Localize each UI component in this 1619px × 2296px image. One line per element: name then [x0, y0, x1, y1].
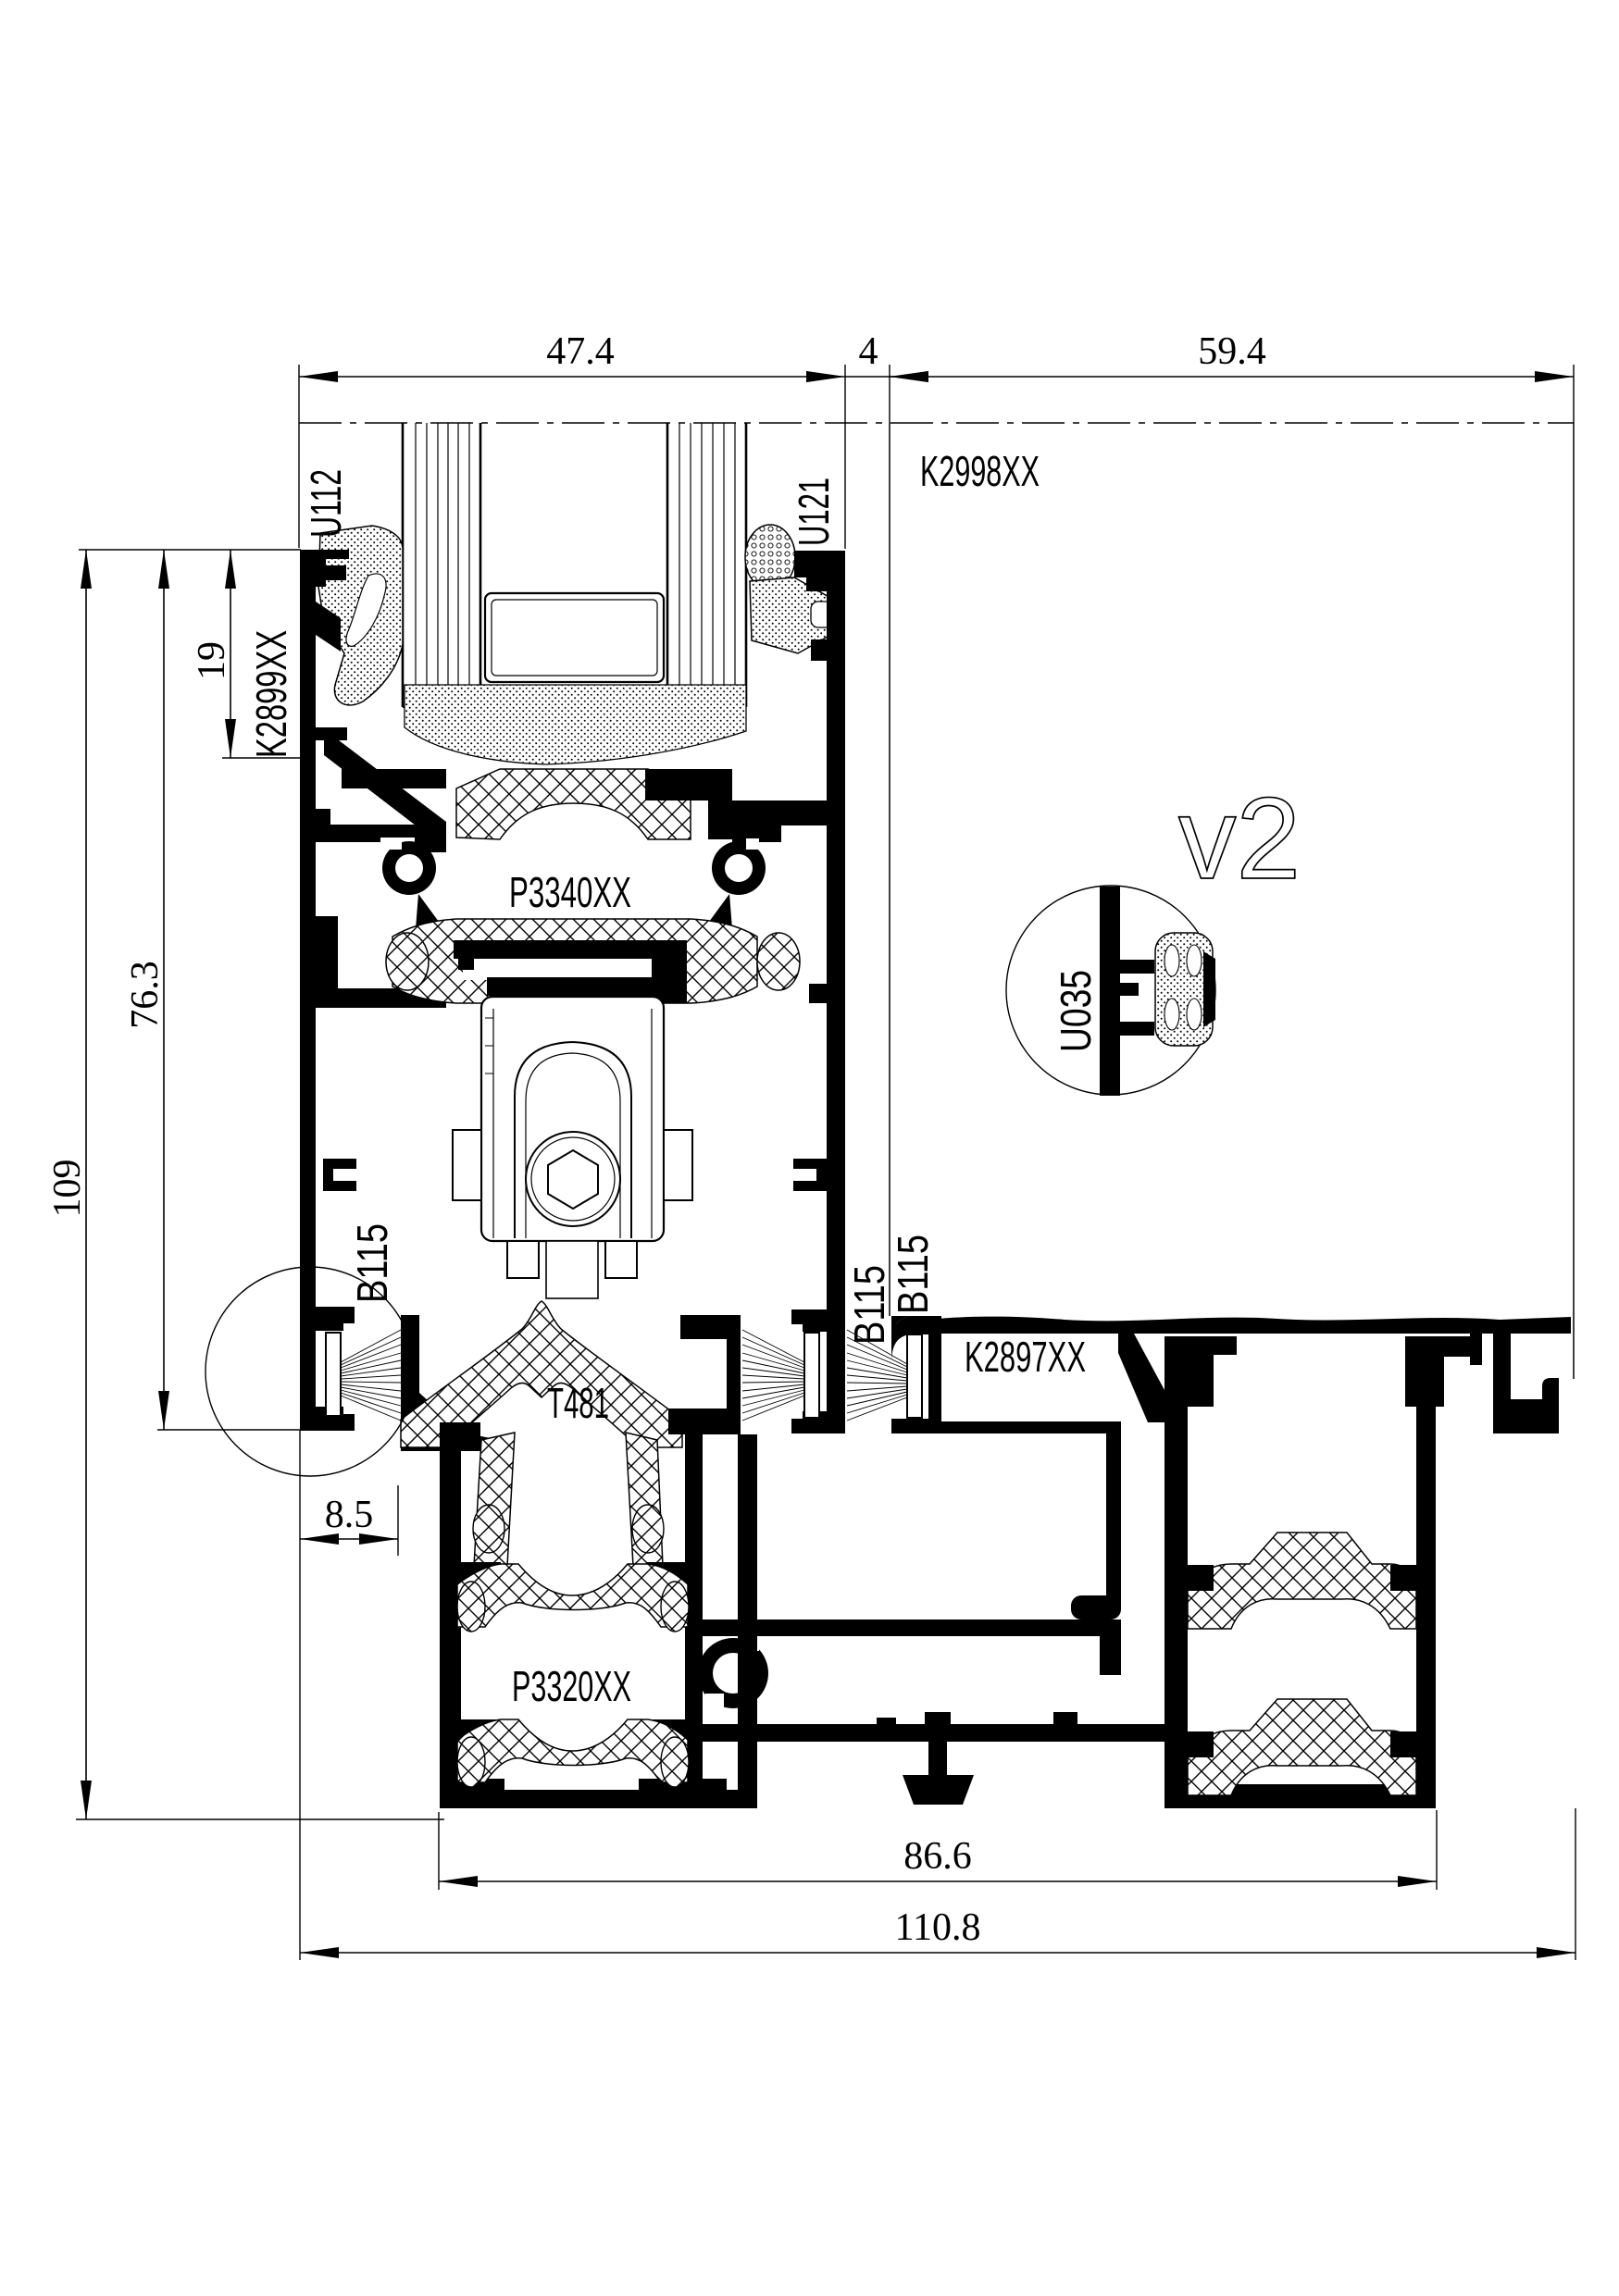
- svg-text:110.8: 110.8: [895, 1906, 981, 1949]
- svg-text:76.3: 76.3: [124, 961, 167, 1029]
- svg-text:U035: U035: [1052, 970, 1100, 1052]
- svg-text:K2998XX: K2998XX: [920, 447, 1040, 495]
- svg-text:K2897XX: K2897XX: [965, 1333, 1086, 1381]
- svg-text:86.6: 86.6: [903, 1835, 972, 1878]
- svg-text:4: 4: [859, 330, 878, 373]
- svg-text:B115: B115: [889, 1235, 937, 1314]
- svg-text:P3320XX: P3320XX: [512, 1662, 631, 1710]
- svg-text:59.4: 59.4: [1198, 330, 1266, 373]
- svg-text:B115: B115: [845, 1265, 893, 1345]
- svg-text:P3340XX: P3340XX: [509, 868, 631, 916]
- svg-text:8.5: 8.5: [325, 1494, 374, 1536]
- svg-text:B115: B115: [348, 1223, 396, 1303]
- svg-text:47.4: 47.4: [546, 330, 615, 373]
- svg-text:109: 109: [46, 1160, 89, 1218]
- svg-text:19: 19: [191, 641, 233, 680]
- svg-text:U121: U121: [790, 478, 838, 546]
- svg-text:v2: v2: [1178, 775, 1301, 903]
- svg-text:K2899XX: K2899XX: [247, 630, 295, 758]
- svg-text:U112: U112: [302, 469, 350, 538]
- svg-text:T481: T481: [547, 1379, 609, 1427]
